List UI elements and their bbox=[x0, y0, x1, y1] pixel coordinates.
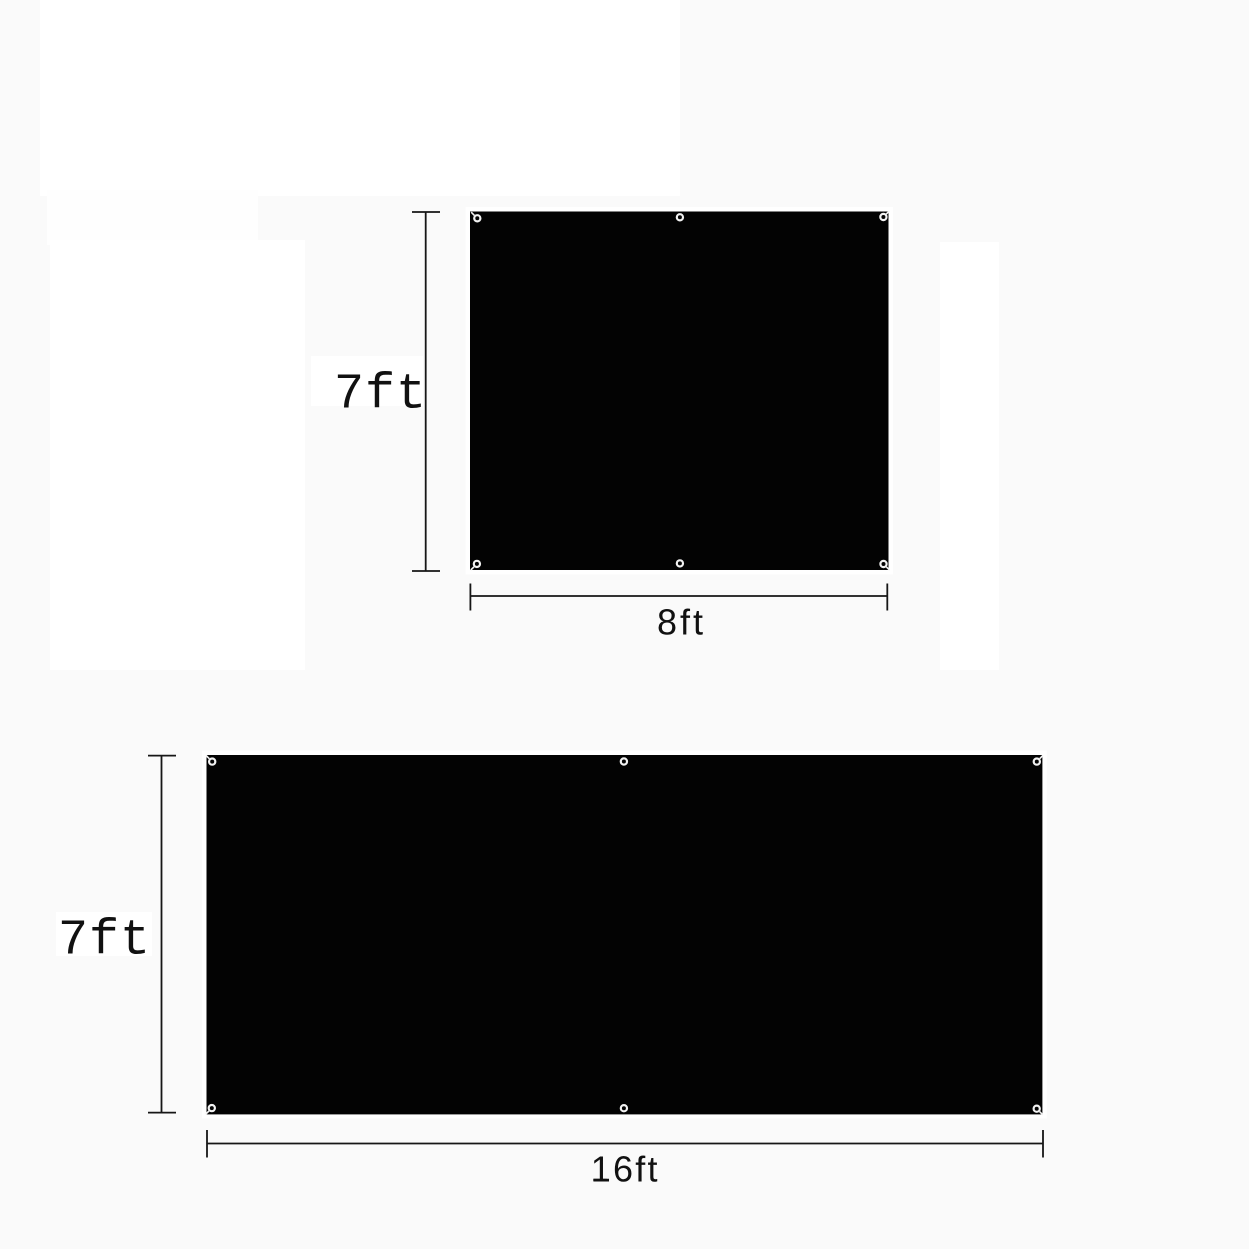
svg-text:16ft: 16ft bbox=[591, 1149, 660, 1190]
svg-text:8ft: 8ft bbox=[657, 602, 706, 643]
svg-text:7ft: 7ft bbox=[334, 366, 427, 423]
svg-text:7ft: 7ft bbox=[58, 912, 151, 969]
